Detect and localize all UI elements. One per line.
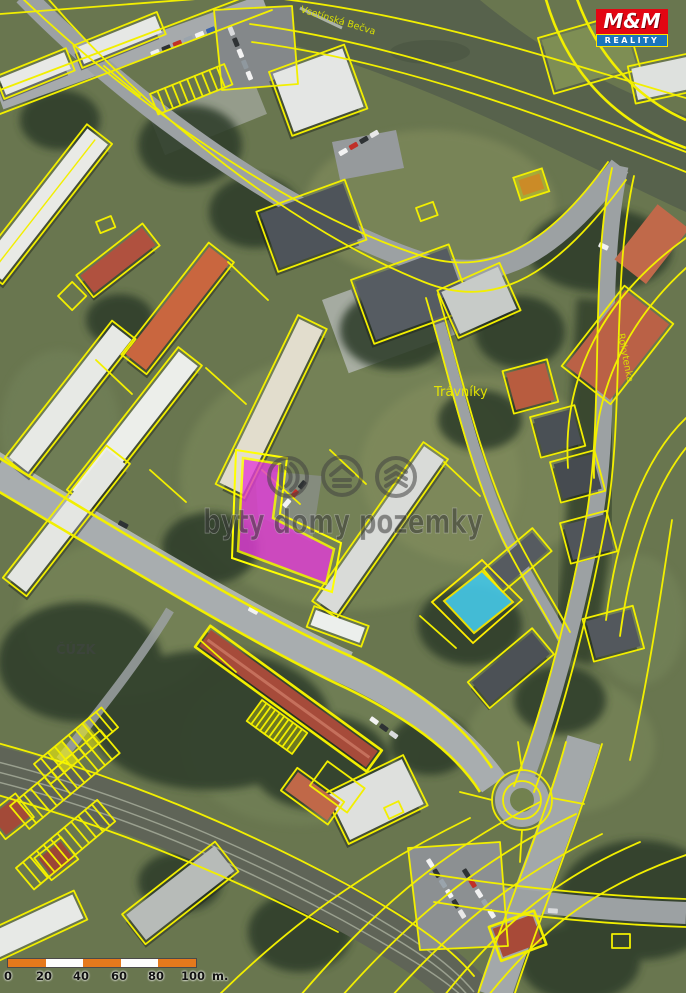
scalebar-segment — [158, 959, 196, 967]
district-label: Trávníky — [433, 385, 488, 400]
scalebar-tick: 40 — [73, 969, 89, 983]
provider-watermark: ČÚZK — [56, 642, 97, 658]
scalebar-ticks: 0 20 40 60 80 100 m. — [7, 968, 197, 983]
scalebar-tick: 60 — [111, 969, 127, 983]
map-canvas[interactable]: Vsetínská Bečva Trávníky Rokytenka ČÚZK … — [0, 0, 686, 993]
watermark-text: byty domy pozemky — [203, 502, 483, 541]
scalebar-tick: 20 — [36, 969, 52, 983]
scalebar-segment — [83, 959, 121, 967]
map-scalebar: 0 20 40 60 80 100 m. — [7, 958, 197, 983]
scalebar-segment — [46, 959, 84, 967]
agency-logo-wordmark: REALITY — [596, 34, 668, 47]
agency-logo-mark: M&M — [596, 9, 668, 34]
agency-logo[interactable]: M&M REALITY — [596, 9, 668, 47]
scalebar-segment — [121, 959, 159, 967]
scalebar-segment — [8, 959, 46, 967]
scalebar-tick: 100 — [181, 969, 205, 983]
listing-map-screenshot: Vsetínská Bečva Trávníky Rokytenka ČÚZK … — [0, 0, 686, 993]
scalebar-unit: m. — [212, 969, 228, 983]
scalebar-tick: 0 — [4, 969, 12, 983]
scalebar-bar — [7, 958, 197, 968]
scalebar-tick: 80 — [148, 969, 164, 983]
